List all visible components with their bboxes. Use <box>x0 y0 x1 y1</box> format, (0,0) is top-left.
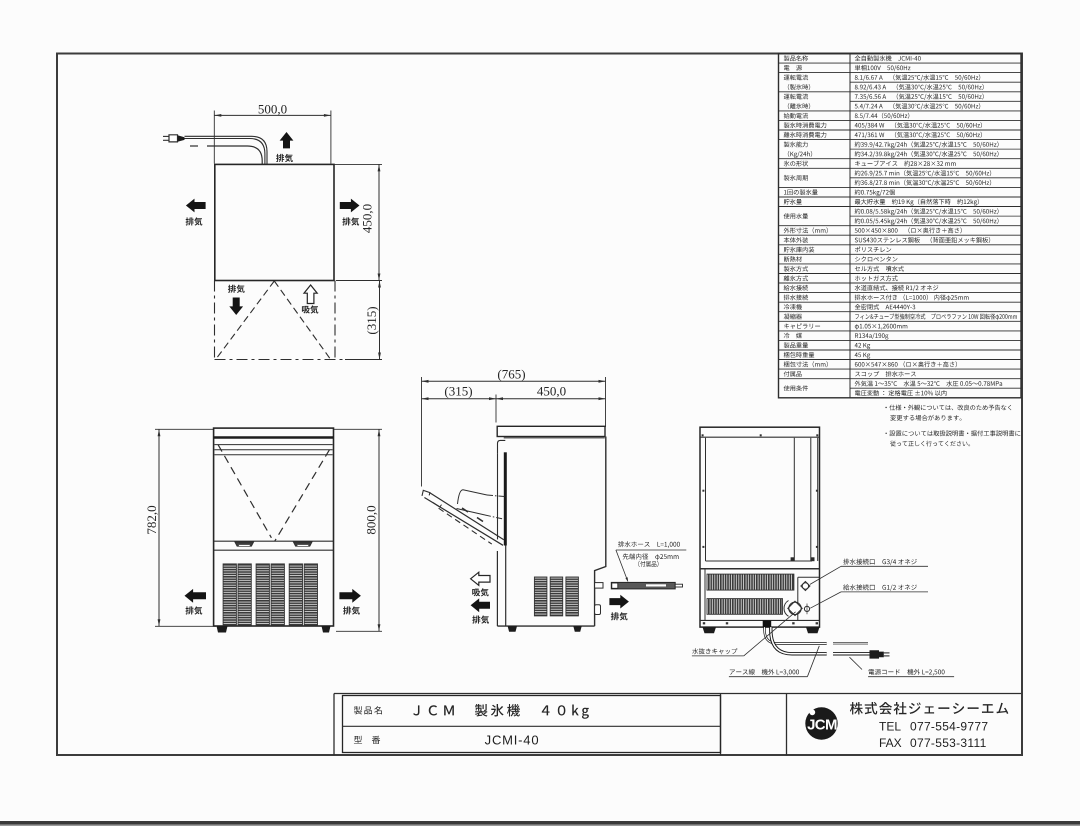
svg-text:450,0: 450,0 <box>537 384 566 399</box>
svg-text:(315): (315) <box>444 384 472 399</box>
svg-text:077-554-9777: 077-554-9777 <box>910 720 988 734</box>
svg-text:450,0: 450,0 <box>360 204 375 233</box>
svg-text:(765): (765) <box>497 367 525 382</box>
svg-text:FAX: FAX <box>879 736 902 750</box>
svg-text:800,0: 800,0 <box>364 505 379 534</box>
svg-text:(315): (315) <box>364 306 379 334</box>
svg-text:TEL: TEL <box>879 720 901 734</box>
svg-text:782,0: 782,0 <box>144 505 159 534</box>
svg-text:077-553-3111: 077-553-3111 <box>910 736 987 750</box>
svg-text:JCM: JCM <box>807 717 837 734</box>
svg-text:JCMI-40: JCMI-40 <box>485 732 540 747</box>
svg-text:500,0: 500,0 <box>258 102 287 117</box>
